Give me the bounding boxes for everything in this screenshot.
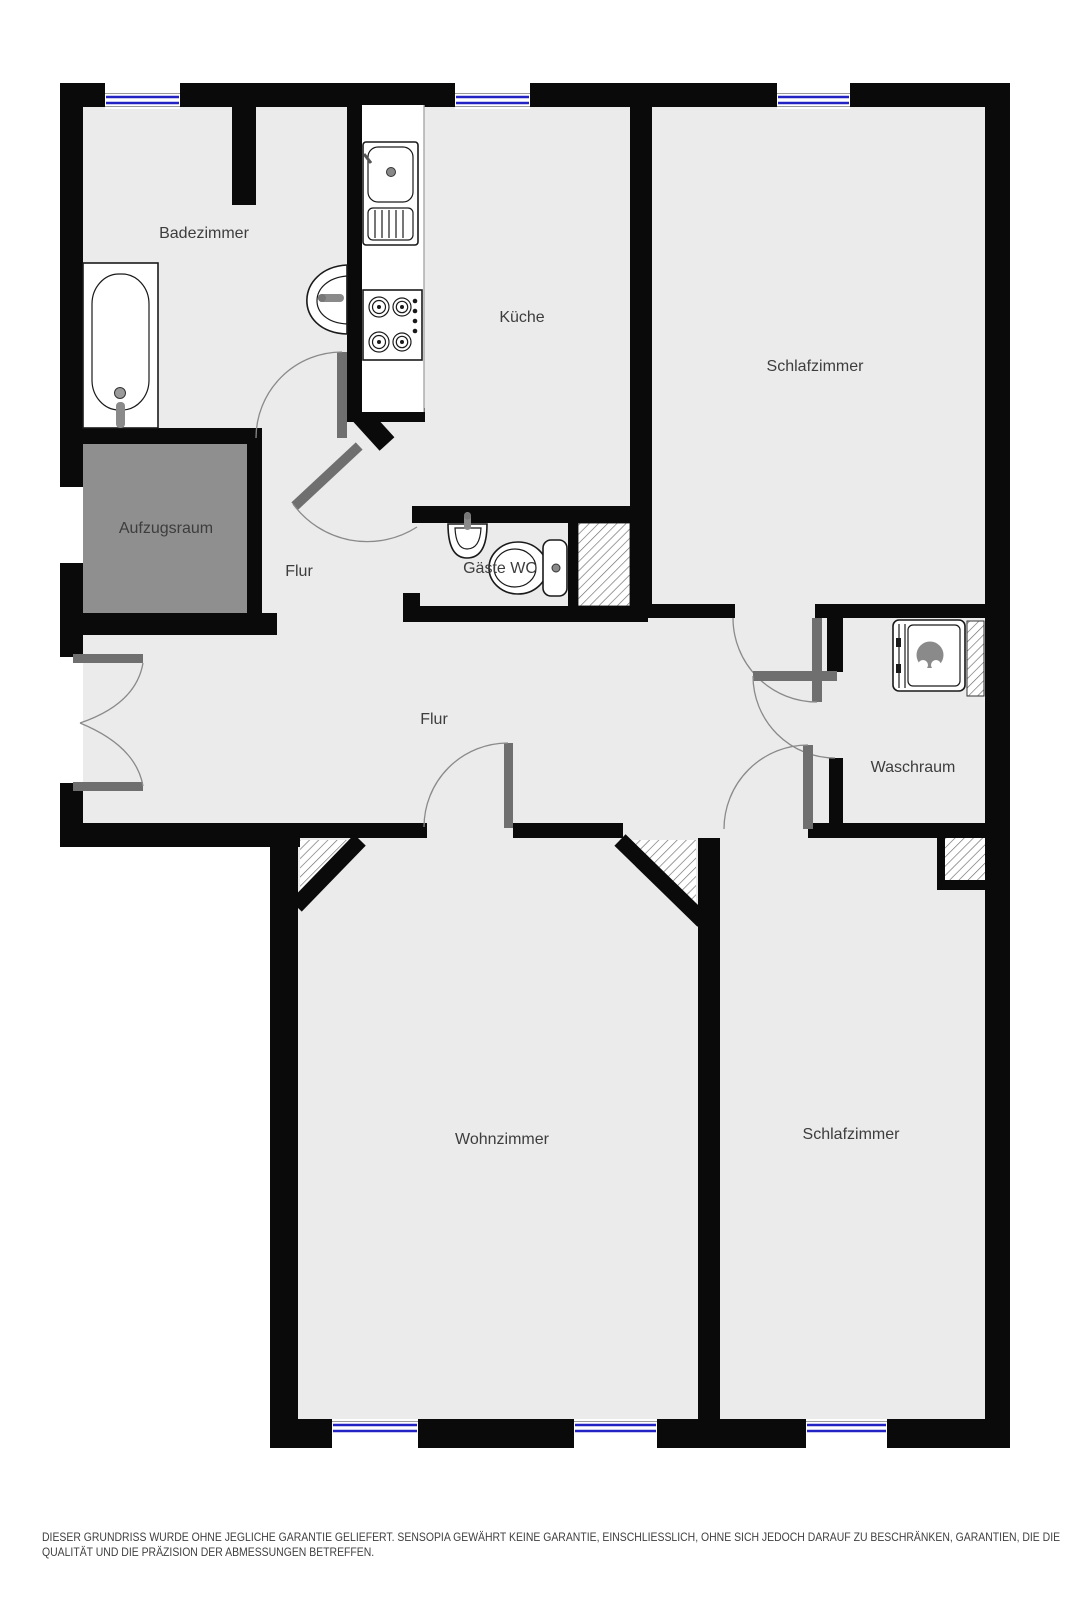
wall-wohnzimmer-left [270,838,298,1419]
kitchen-sink-icon [363,142,418,245]
wall-wc-shaft [568,523,578,606]
room-label-flur-oben: Flur [285,563,313,580]
wall-waschraum-left-lower [829,758,843,823]
window-wohnzimmer-2 [574,1419,657,1448]
floor-wohnzimmer [298,838,698,1419]
wall-waschraum-left-upper [827,618,843,672]
room-label-aufzugsraum: Aufzugsraum [119,520,213,537]
disclaimer-line-1: DIESER GRUNDRISS WURDE OHNE JEGLICHE GAR… [42,1530,1060,1545]
wall-room-divider [698,838,720,1419]
entrance-door-leaf-bottom [73,782,143,791]
floor-areas [83,105,985,1419]
wall-top [62,83,1010,107]
wall-aufzug-bottom [60,613,277,635]
window-wohnzimmer-1 [332,1419,418,1448]
floorplan-svg: Badezimmer Küche Schlafzimmer Aufzugsrau… [0,0,1067,1600]
window-kueche [455,83,530,109]
wall-flur-bottom-thick [60,823,300,847]
schlafzimmer-unten-door-leaf [803,745,813,829]
washing-machine-icon [893,620,965,691]
room-label-schlafzimmer-unten: Schlafzimmer [803,1126,901,1143]
burner [369,297,389,317]
wall-left-mid [60,563,83,657]
wall-badezimmer-bottom [60,428,262,444]
wall-wc-bottom [403,606,648,622]
window-schlafzimmer-unten [806,1419,887,1448]
wall-wc-top [412,506,630,523]
waschraum-door-leaf [753,671,837,681]
shaft-hatch-waschraum [967,621,984,696]
burner [393,333,411,351]
shaft-hatch-corner [945,838,985,880]
burner [393,298,411,316]
wall-waschraum-top-right [815,604,985,618]
disclaimer-line-2: QUALITÄT UND DIE PRÄZISION DER ABMESSUNG… [42,1545,1060,1560]
room-label-schlafzimmer-oben: Schlafzimmer [767,358,865,375]
entrance-door-leaf-top [73,654,143,663]
room-label-badezimmer: Badezimmer [159,225,249,242]
room-label-gaeste-wc: Gäste WC [463,560,537,577]
window-badezimmer [105,83,180,109]
burner [369,332,389,352]
window-schlafzimmer-oben [777,83,850,109]
wall-left-upper [60,83,83,487]
stove-icon [363,290,422,360]
room-label-wohnzimmer: Wohnzimmer [455,1131,550,1148]
wall-right [985,83,1010,1448]
room-label-flur: Flur [420,711,448,728]
wall-schlafzimmer-oben-left [630,105,652,618]
room-label-kueche: Küche [499,309,544,326]
badezimmer-door-leaf [337,352,347,438]
bathtub-icon [83,263,158,428]
disclaimer-text: DIESER GRUNDRISS WURDE OHNE JEGLICHE GAR… [42,1530,1060,1560]
wall-flur-bottom-b [513,823,623,838]
wall-waschraum-top-left [640,604,735,618]
wall-badezimmer-kueche [347,105,362,410]
room-label-waschraum: Waschraum [871,759,956,776]
wall-aufzug-right [247,428,262,635]
schlafzimmer-oben-door-leaf [812,618,822,702]
wall-badezimmer-stub [232,105,256,205]
shaft-hatch-wc [578,523,630,606]
floorplan-canvas: Badezimmer Küche Schlafzimmer Aufzugsrau… [0,0,1067,1600]
wohnzimmer-door-leaf [504,743,513,828]
